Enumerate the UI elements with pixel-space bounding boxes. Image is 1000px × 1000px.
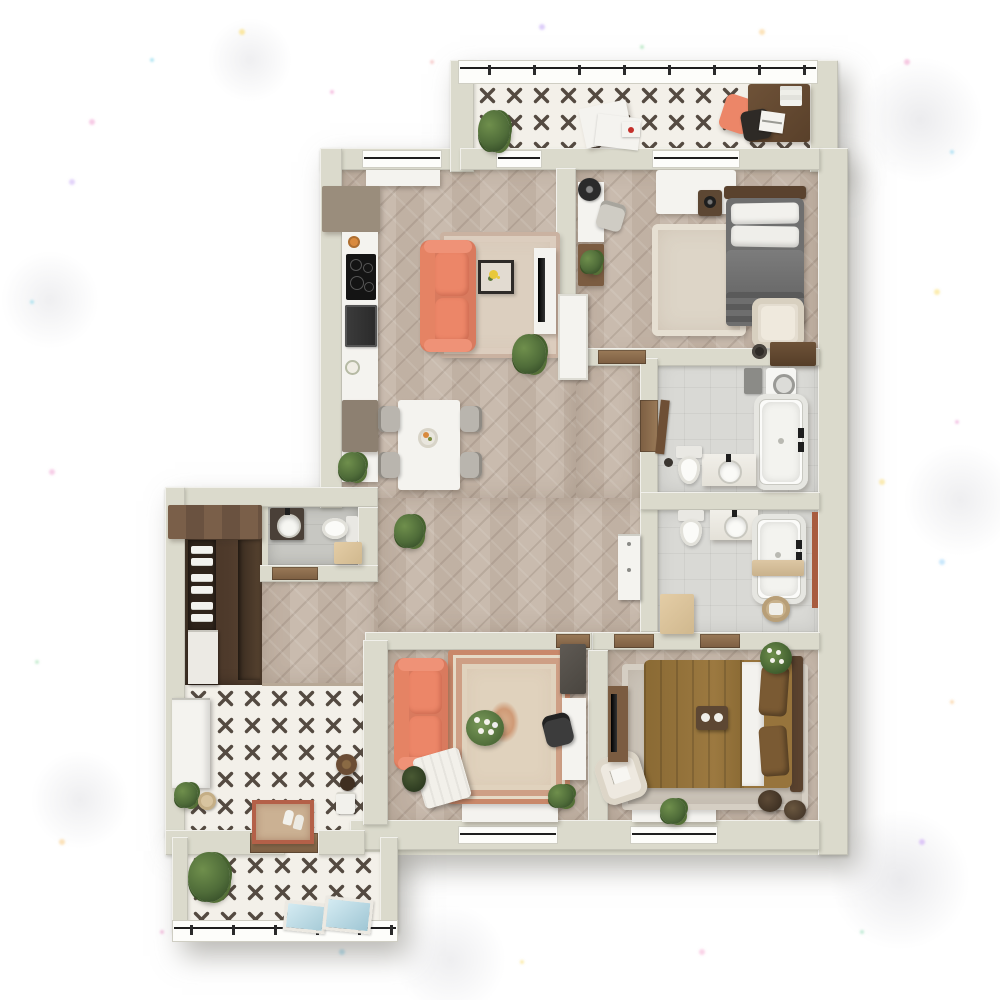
living1-coral-sofa — [420, 240, 476, 352]
tv — [538, 258, 545, 322]
sofa-back — [394, 662, 409, 766]
bedroom1-fan — [578, 178, 601, 201]
sofa-back — [420, 244, 435, 348]
folded-linens — [191, 558, 213, 565]
nightstand-lamp — [704, 196, 716, 208]
dining-chair — [378, 406, 400, 432]
cooktop — [346, 254, 376, 300]
living2-plant-small — [548, 784, 574, 808]
wall-closet-top — [165, 487, 378, 507]
folded-linens — [191, 602, 213, 609]
bedroom2-nightstand-plant — [760, 642, 792, 674]
kitchen-window-sill — [366, 170, 440, 186]
terrace-rail-posts — [488, 65, 491, 75]
terrace-book-stack — [780, 86, 802, 106]
door-glass-line — [498, 157, 540, 159]
terrace-plant — [478, 110, 510, 152]
corridor-floor-west — [262, 568, 378, 685]
bathroom2-wall-accent — [812, 512, 818, 608]
balcony-plant — [188, 852, 230, 902]
bathroom2-cabinet — [660, 594, 694, 634]
wc-door-threshold — [272, 567, 318, 580]
white-blossoms — [767, 648, 772, 653]
entry-shoe-cabinet — [172, 698, 210, 788]
bedroom2-door-threshold — [614, 634, 654, 648]
kitchen-upper-cabinet — [322, 186, 380, 232]
bedroom1-door-threshold — [598, 350, 646, 364]
wc-vanity — [270, 508, 304, 540]
kitchen-bowl — [348, 236, 360, 248]
background-speckles — [0, 0, 4, 4]
entry-basket — [198, 792, 216, 810]
dining-chair — [460, 452, 482, 478]
bathroom2-door-threshold — [700, 634, 740, 648]
wall-entry-living2 — [363, 640, 388, 825]
wc-faucet — [285, 508, 290, 515]
bedroom1-nightstand — [698, 190, 722, 216]
window-glass-line — [654, 157, 738, 159]
bedroom1-wardrobe — [558, 294, 588, 380]
vanity-sink — [724, 515, 748, 539]
terrace-rail-line — [460, 67, 816, 69]
closet-hanging-side — [238, 540, 260, 680]
coat-stand-bag — [340, 776, 355, 791]
tray-cup — [701, 713, 710, 722]
terrace-door — [496, 150, 542, 168]
bed-pillow — [731, 202, 799, 224]
terrace-note-card — [622, 122, 640, 137]
vanity-sink — [718, 460, 742, 484]
terrace-glazing — [458, 60, 818, 84]
living2-window — [458, 826, 558, 844]
kitchen-base-cabinet — [342, 400, 378, 452]
living2-flower-bouquet — [466, 710, 504, 746]
breakfast-tray — [696, 706, 728, 730]
dining-chair — [460, 406, 482, 432]
window-glass-line — [460, 833, 556, 835]
armchair-cushion — [761, 306, 795, 340]
burner — [350, 276, 364, 290]
living2-tall-cabinet — [560, 644, 586, 694]
wall-outer-right — [818, 148, 848, 855]
table-flowers-yellow — [489, 270, 498, 279]
folded-linens — [191, 614, 213, 621]
dining-chair — [378, 452, 400, 478]
basket-towel — [769, 603, 783, 615]
wall-outer-bottom — [350, 820, 820, 850]
closet-drawer-unit — [188, 630, 218, 684]
wc-toilet-bowl — [322, 518, 348, 539]
window-glass-line — [364, 157, 440, 159]
tub-faucet — [796, 540, 802, 549]
bedroom1-window — [652, 150, 740, 168]
vanity-faucet — [726, 454, 731, 462]
kitchen-flowers — [347, 362, 358, 373]
bedroom2-sill-plant — [660, 798, 686, 824]
toilet-brush — [664, 458, 673, 467]
bedroom2-pouf — [784, 800, 806, 820]
coffee-table — [478, 260, 514, 294]
folded-linens — [191, 586, 213, 593]
hallway-shelf-cabinet — [618, 534, 640, 600]
laundry-basket — [762, 596, 790, 622]
bathroom1-vanity — [702, 454, 756, 486]
balcony-rail-posts — [190, 925, 193, 935]
chair-book — [609, 766, 630, 785]
bathroom2-bathtub — [752, 514, 806, 604]
folded-linens — [191, 546, 213, 553]
bathroom1-washing-machine — [766, 368, 796, 396]
red-dot — [628, 127, 634, 133]
oven — [345, 305, 377, 347]
fruit-bowl — [418, 428, 438, 448]
vanity-faucet — [732, 510, 737, 517]
bedroom1-armchair — [752, 298, 804, 348]
wall-between-bathrooms — [640, 492, 820, 510]
kitchen-window — [362, 150, 442, 168]
bath-caddy — [752, 560, 804, 576]
bedroom2-pouf — [758, 790, 782, 812]
laptop-hinge-line — [762, 120, 782, 125]
tub-drain — [778, 438, 784, 444]
hallway-plant — [394, 514, 424, 548]
floor-transition — [262, 683, 363, 686]
terrace-laptop — [759, 110, 786, 133]
wall-entry-bottom-right — [318, 830, 365, 855]
bedroom2-bed — [644, 660, 792, 788]
coat-stand-hat — [336, 754, 357, 775]
window-glass-line — [632, 833, 716, 835]
bathroom1-bathtub — [754, 394, 808, 490]
bathroom1-vessel-sink — [752, 344, 767, 359]
sofa-armrest — [424, 240, 472, 253]
wc-storage-box — [334, 542, 362, 564]
living1-plant-small — [338, 452, 366, 482]
bathroom1-wood-counter — [770, 342, 816, 366]
bathroom1-panel — [744, 368, 762, 394]
bedroom2-window — [630, 826, 718, 844]
entry-towel-stack — [336, 792, 355, 814]
sofa-armrest — [424, 339, 472, 352]
sofa-cushion — [409, 670, 442, 714]
bed-pillow-brown — [758, 725, 789, 777]
bouquet-blossoms — [474, 717, 480, 723]
sofa-cushion — [435, 252, 469, 296]
bathroom2-vanity — [710, 510, 758, 540]
wc-sink — [277, 514, 301, 538]
fruit — [423, 432, 429, 438]
washer-door — [773, 374, 795, 396]
closet-wardrobe-top — [168, 505, 262, 539]
entry-plant — [174, 782, 198, 808]
burner — [364, 282, 374, 292]
bedroom1-shelf-plant — [580, 250, 602, 274]
cabinet-knob — [627, 542, 631, 546]
tub-drain — [775, 552, 781, 558]
tub-basin — [760, 522, 798, 596]
bed-pillow — [731, 225, 799, 247]
living1-plant-large — [512, 334, 546, 374]
bedroom2-tv — [611, 694, 617, 752]
balcony-glass-panel — [283, 900, 328, 934]
closet-shelf-column — [188, 540, 216, 632]
sofa-cushion — [435, 298, 469, 342]
wall-balcony-left — [172, 837, 188, 932]
living2-plant-dark — [402, 766, 426, 792]
sofa-armrest — [398, 658, 444, 671]
burner — [350, 259, 362, 271]
balcony-glass-panel — [322, 896, 373, 935]
folded-linens — [191, 574, 213, 581]
wall-balcony-right — [380, 837, 398, 932]
tub-faucet — [798, 428, 804, 438]
bedroom2-desk — [608, 686, 628, 762]
burner — [363, 263, 373, 273]
bed-duvet-folds — [644, 660, 744, 788]
floor-plan-canvas — [0, 0, 1000, 1000]
